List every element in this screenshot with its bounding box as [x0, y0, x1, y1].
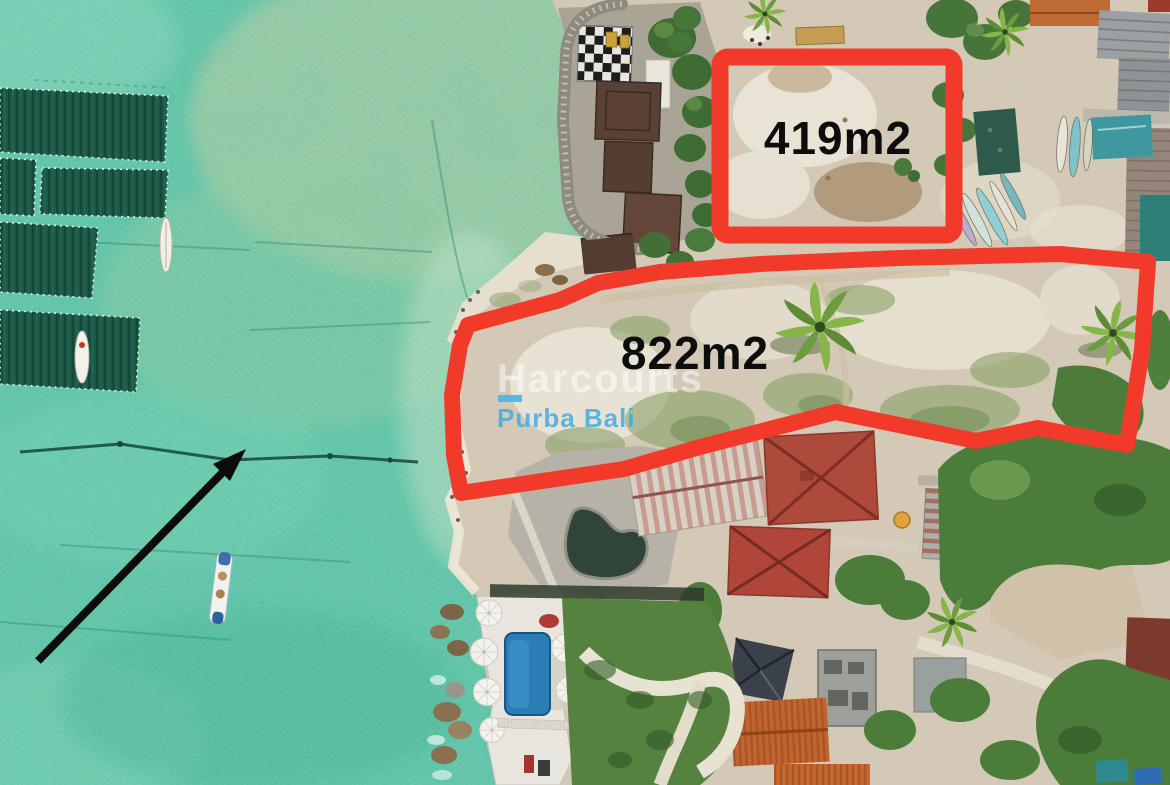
teal-tarp-south	[1095, 759, 1128, 783]
red-hip-roof-north	[764, 431, 878, 525]
red-flower-bush	[539, 614, 559, 628]
teal-tarp	[1091, 114, 1153, 159]
checkered-plaza	[577, 25, 633, 83]
bush	[908, 170, 920, 182]
red-roof-corner	[1148, 0, 1170, 12]
orange-roof-bottom	[774, 764, 870, 785]
aerial-photo-canvas: 419m2 822m2 Harcourts Purba Bali	[0, 0, 1170, 785]
watermark-office: Purba Bali	[497, 403, 636, 433]
boat-canoe-north	[160, 218, 172, 272]
red-hip-roof-south	[728, 526, 830, 597]
watermark-dash	[498, 395, 522, 402]
shade-net	[973, 108, 1020, 175]
dark-roof	[581, 235, 636, 274]
orange-corrugated-roof	[730, 698, 829, 767]
plot-area-label-419: 419m2	[764, 112, 912, 164]
yellow-figure	[894, 512, 910, 528]
white-umbrella	[476, 600, 502, 626]
blue-tarp	[1133, 767, 1163, 785]
kayaks-east	[1055, 116, 1094, 178]
white-umbrella	[473, 678, 500, 705]
watermark-brand: Harcourts	[497, 357, 704, 401]
boat-canoe-west	[75, 331, 89, 383]
aerial-photo: 419m2 822m2 Harcourts Purba Bali	[0, 0, 1170, 785]
gold-shrine	[606, 32, 617, 47]
gold-shrine	[620, 35, 629, 48]
woven-mat	[796, 26, 845, 45]
white-umbrella	[470, 638, 497, 665]
teal-shed	[1140, 195, 1170, 261]
